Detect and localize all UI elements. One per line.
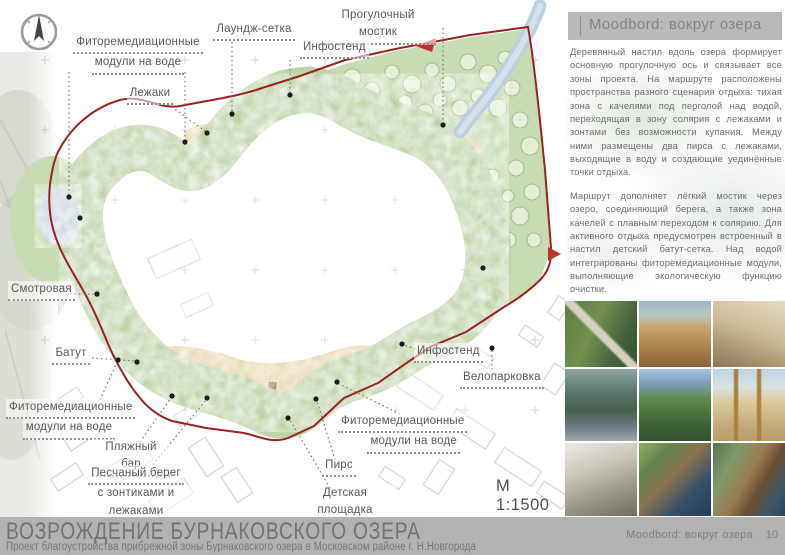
panel-header-title: Moodbord: вокруг озера <box>589 16 762 33</box>
photo-lounge-net-water <box>639 443 711 516</box>
photo-deck-solarium <box>713 301 785 367</box>
plan-label-phytoremediation-top: Фиторемедиационные модули на воде <box>62 34 214 75</box>
photo-wetland-boardwalk <box>565 301 637 367</box>
plan-label-sunloungers: Лежаки <box>118 85 182 105</box>
page-number: 10 <box>766 529 778 541</box>
plan-label-infostand-east: Инфостенд <box>414 343 480 363</box>
plan-label-trampoline: Батут <box>48 345 94 365</box>
masterplan-area: озеро Бурнаковское нижнее Фиторемедиацио… <box>0 0 565 517</box>
sheet-footer: ВОЗРОЖДЕНИЕ БУРНАКОВСКОГО ОЗЕРА Проект б… <box>0 517 785 555</box>
plan-label-viewpoint: Смотровая <box>8 281 72 301</box>
lake-name-watermark: озеро Бурнаковское нижнее <box>218 226 399 238</box>
plan-label-bike-parking: Велопарковка <box>460 369 540 389</box>
paragraph-bridge: Маршрут дополняет лёгкий мостик через оз… <box>570 190 782 297</box>
header-divider <box>580 16 581 36</box>
scale-label: М 1:1500 <box>496 477 565 515</box>
photo-wooden-playground <box>713 369 785 441</box>
panel-header: Moodbord: вокруг озера <box>568 12 782 40</box>
plan-label-lounge-net: Лаундж-сетка <box>204 21 304 41</box>
photo-lake-piers <box>565 369 637 441</box>
plan-label-sandy-shore: Песчаный берег с зонтиками и лежаками <box>70 465 202 523</box>
photo-curved-boardwalk <box>713 443 785 516</box>
footer-caption: Moodbord: вокруг озера <box>626 529 753 541</box>
plan-label-infostand-top: Инфостенд <box>300 39 366 59</box>
west-pond <box>37 187 79 245</box>
plan-label-phytoremediation-southwest: Фиторемедиационные модули на воде <box>6 399 132 440</box>
plan-label-phytoremediation-southeast: Фиторемедиационные модули на воде <box>338 413 460 454</box>
moodboard-photo-collage <box>565 301 785 516</box>
sheet-subtitle: Проект благоустройства прибрежной зоны Б… <box>6 541 476 553</box>
photo-beach-umbrellas <box>639 301 711 367</box>
moodboard-panel: Moodbord: вокруг озера Деревянный настил… <box>565 0 785 517</box>
plan-label-pier: Пирс <box>318 457 360 477</box>
presentation-sheet: озеро Бурнаковское нижнее Фиторемедиацио… <box>0 0 785 555</box>
paragraph-route: Деревянный настил вдоль озера формирует … <box>570 46 782 180</box>
photo-bike-shelter <box>565 443 637 516</box>
photo-park-path-bench <box>639 369 711 441</box>
